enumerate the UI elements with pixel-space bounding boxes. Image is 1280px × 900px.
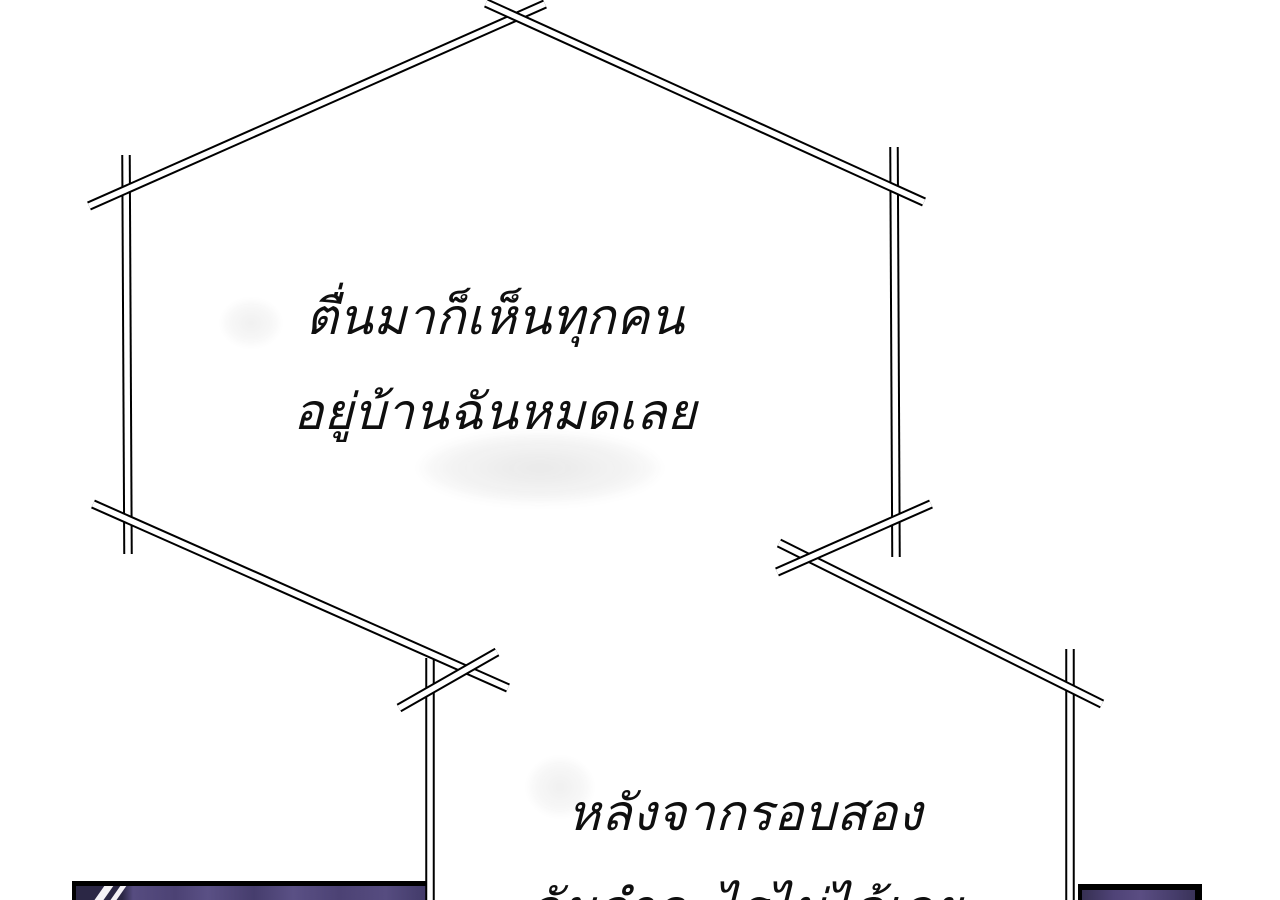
- speech-text-1: ตื่นมาก็เห็นทุกคน อยู่บ้านฉันหมดเลย: [245, 270, 745, 460]
- speech-line: หลังจากรอบสอง: [505, 766, 985, 861]
- stick-bottom-left-diagonal: [93, 504, 508, 688]
- stick-right-cross: [777, 504, 931, 572]
- stick-top-left-diagonal: [89, 4, 545, 206]
- stick-right-vertical: [894, 147, 896, 557]
- speech-text-2: หลังจากรอบสอง ฉันจำอะไรไม่ได้เลย: [505, 766, 985, 900]
- speech-line: ฉันจำอะไรไม่ได้เลย: [505, 861, 985, 900]
- speech-line: ตื่นมาก็เห็นทุกคน: [245, 270, 745, 365]
- stick-left-vertical: [126, 155, 128, 554]
- speech-line: อยู่บ้านฉันหมดเลย: [245, 365, 745, 460]
- stick-bottom-right-diagonal: [779, 543, 1102, 704]
- stick-top-right-diagonal: [486, 3, 924, 202]
- comic-page: ตื่นมาก็เห็นทุกคน อยู่บ้านฉันหมดเลย หลัง…: [0, 0, 1280, 900]
